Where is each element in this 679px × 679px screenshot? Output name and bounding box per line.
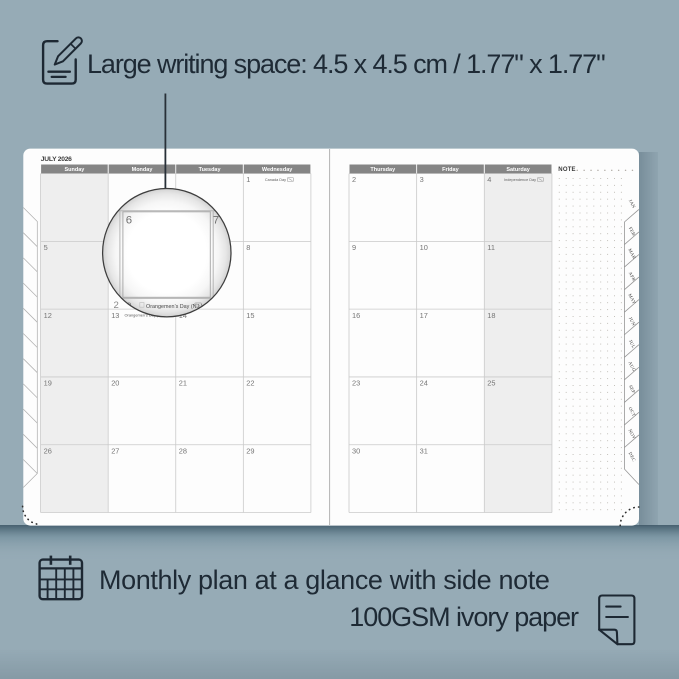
svg-text:24: 24 (420, 379, 428, 388)
svg-text:12: 12 (44, 311, 52, 320)
svg-text:Thursday: Thursday (370, 167, 396, 173)
svg-text:30: 30 (352, 446, 360, 455)
svg-text:Sunday: Sunday (64, 167, 85, 173)
svg-text:Independence Day: Independence Day (504, 178, 536, 182)
svg-text:10: 10 (420, 243, 428, 252)
svg-text:7: 7 (213, 215, 219, 227)
svg-text:23: 23 (352, 379, 360, 388)
svg-text:Wednesday: Wednesday (262, 167, 293, 173)
svg-text:31: 31 (420, 446, 428, 455)
svg-text:JULY 2026: JULY 2026 (41, 156, 72, 163)
svg-text:2: 2 (352, 175, 356, 184)
svg-text:29: 29 (246, 446, 254, 455)
svg-text:Orangemen’s Day (N.I.): Orangemen’s Day (N.I.) (146, 304, 203, 310)
svg-text:16: 16 (352, 311, 360, 320)
svg-text:21: 21 (179, 379, 187, 388)
svg-text:Monday: Monday (132, 167, 154, 173)
svg-text:2: 2 (113, 300, 118, 311)
svg-text:26: 26 (44, 446, 52, 455)
svg-text:22: 22 (246, 379, 254, 388)
svg-text:11: 11 (487, 243, 495, 252)
svg-text:6: 6 (126, 215, 132, 227)
svg-text:1: 1 (246, 175, 250, 184)
svg-text:17: 17 (420, 311, 428, 320)
svg-text:4: 4 (487, 175, 491, 184)
svg-text:9: 9 (352, 243, 356, 252)
svg-text:18: 18 (487, 311, 495, 320)
svg-text:Friday: Friday (442, 167, 459, 173)
svg-text:Canada Day: Canada Day (265, 178, 286, 182)
svg-text:28: 28 (179, 446, 187, 455)
svg-text:3: 3 (420, 175, 424, 184)
svg-text:Tuesday: Tuesday (199, 167, 222, 173)
svg-text:8: 8 (246, 243, 250, 252)
svg-text:NOTE: NOTE (558, 167, 575, 173)
svg-text:20: 20 (111, 379, 119, 388)
svg-text:15: 15 (246, 311, 254, 320)
svg-text:27: 27 (111, 446, 119, 455)
svg-text:25: 25 (487, 379, 495, 388)
svg-text:13: 13 (111, 311, 119, 320)
svg-text:5: 5 (44, 243, 48, 252)
svg-text:19: 19 (44, 379, 52, 388)
svg-text:Saturday: Saturday (506, 167, 530, 173)
